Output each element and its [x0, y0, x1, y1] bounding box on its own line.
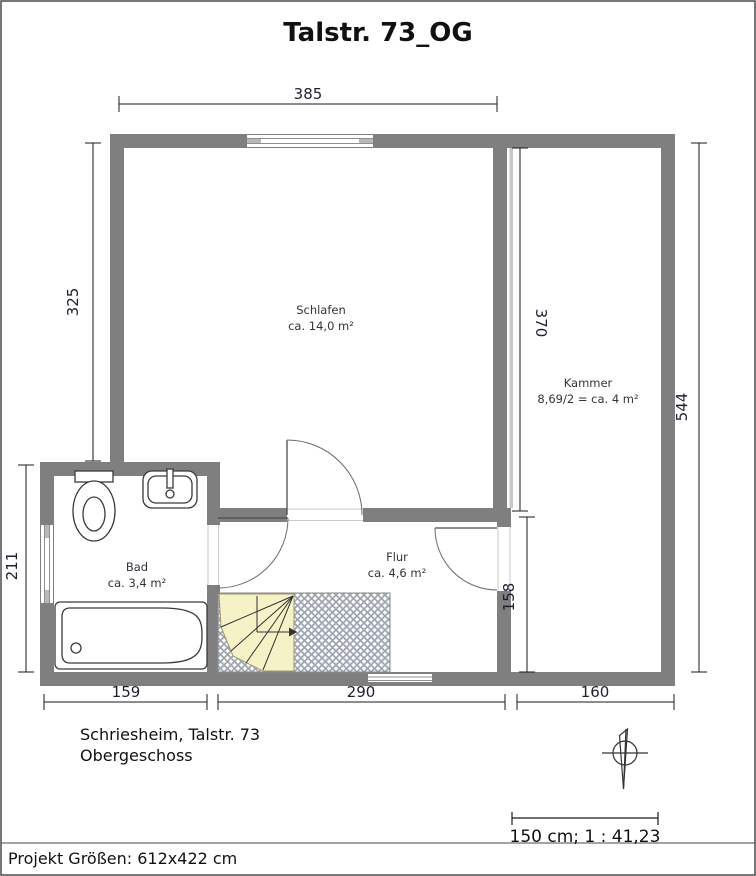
wall-schlafen-kammer [493, 148, 507, 508]
bathtub-inner [62, 608, 202, 663]
wall-left-upper [110, 148, 124, 462]
bathtub [55, 602, 207, 669]
room-labels: Schlafen ca. 14,0 m² Kammer 8,69/2 = ca.… [108, 303, 639, 590]
window-opening [247, 135, 373, 147]
room-label-bad: Bad [126, 560, 148, 574]
room-area-schlafen: ca. 14,0 m² [288, 319, 354, 333]
dim-label-325: 325 [64, 288, 82, 317]
page-title: Talstr. 73_OG [283, 18, 472, 48]
address-text: Schriesheim, Talstr. 73 [80, 725, 260, 744]
window-bottom [368, 674, 432, 682]
floor-plan-page: Talstr. 73_OG [0, 0, 756, 876]
door-kammer [435, 528, 497, 590]
room-label-schlafen: Schlafen [296, 303, 346, 317]
wall-schlafen-bottom-left [207, 508, 287, 522]
sink-drain [166, 490, 174, 498]
dim-label-290: 290 [347, 683, 376, 701]
project-size-text: Projekt Größen: 612x422 cm [8, 849, 237, 868]
room-area-bad: ca. 3,4 m² [108, 576, 166, 590]
door-swing-arc [218, 518, 288, 588]
door-swing-arc [435, 528, 497, 590]
scale-bar: 150 cm; 1 : 41,23 [510, 812, 661, 847]
scale-text: 150 cm; 1 : 41,23 [510, 827, 661, 847]
dim-label-385: 385 [294, 85, 323, 103]
bathtub-drain [71, 643, 81, 653]
dim-label-370: 370 [532, 309, 550, 338]
door-swing-arc [287, 440, 362, 515]
sink-tap [167, 469, 173, 488]
staircase [218, 593, 390, 672]
dim-label-159: 159 [112, 683, 141, 701]
door-schlafen [287, 440, 362, 515]
window-bad [41, 525, 53, 603]
wall-top [110, 134, 675, 148]
window-top [247, 135, 373, 147]
sink [143, 469, 197, 508]
dim-label-160: 160 [581, 683, 610, 701]
toilet-bowl-inner [83, 497, 105, 531]
room-label-flur: Flur [386, 550, 408, 564]
knee-wall-kammer [510, 148, 514, 508]
toilet [73, 471, 115, 541]
door-bad [218, 518, 288, 588]
floor-plan-canvas: Talstr. 73_OG [0, 0, 756, 876]
room-label-kammer: Kammer [564, 376, 613, 390]
dim-label-544: 544 [673, 393, 691, 422]
wall-flur-right-top [497, 508, 511, 527]
dim-label-211: 211 [3, 552, 21, 581]
floor-text: Obergeschoss [80, 746, 193, 765]
room-area-kammer: 8,69/2 = ca. 4 m² [537, 392, 638, 406]
wall-schlafen-bottom-right [363, 508, 497, 522]
dim-label-158: 158 [500, 583, 518, 612]
room-area-flur: ca. 4,6 m² [368, 566, 426, 580]
north-arrow-icon [602, 729, 648, 789]
